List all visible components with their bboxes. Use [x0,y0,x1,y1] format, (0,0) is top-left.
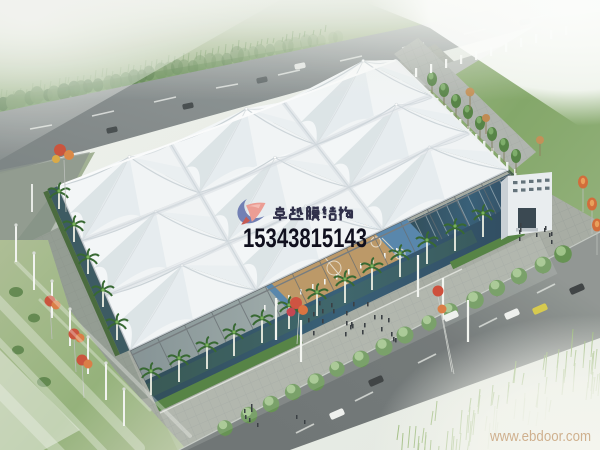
svg-text:15343815143: 15343815143 [243,223,367,253]
svg-text:www.ebdoor.com: www.ebdoor.com [489,428,591,445]
